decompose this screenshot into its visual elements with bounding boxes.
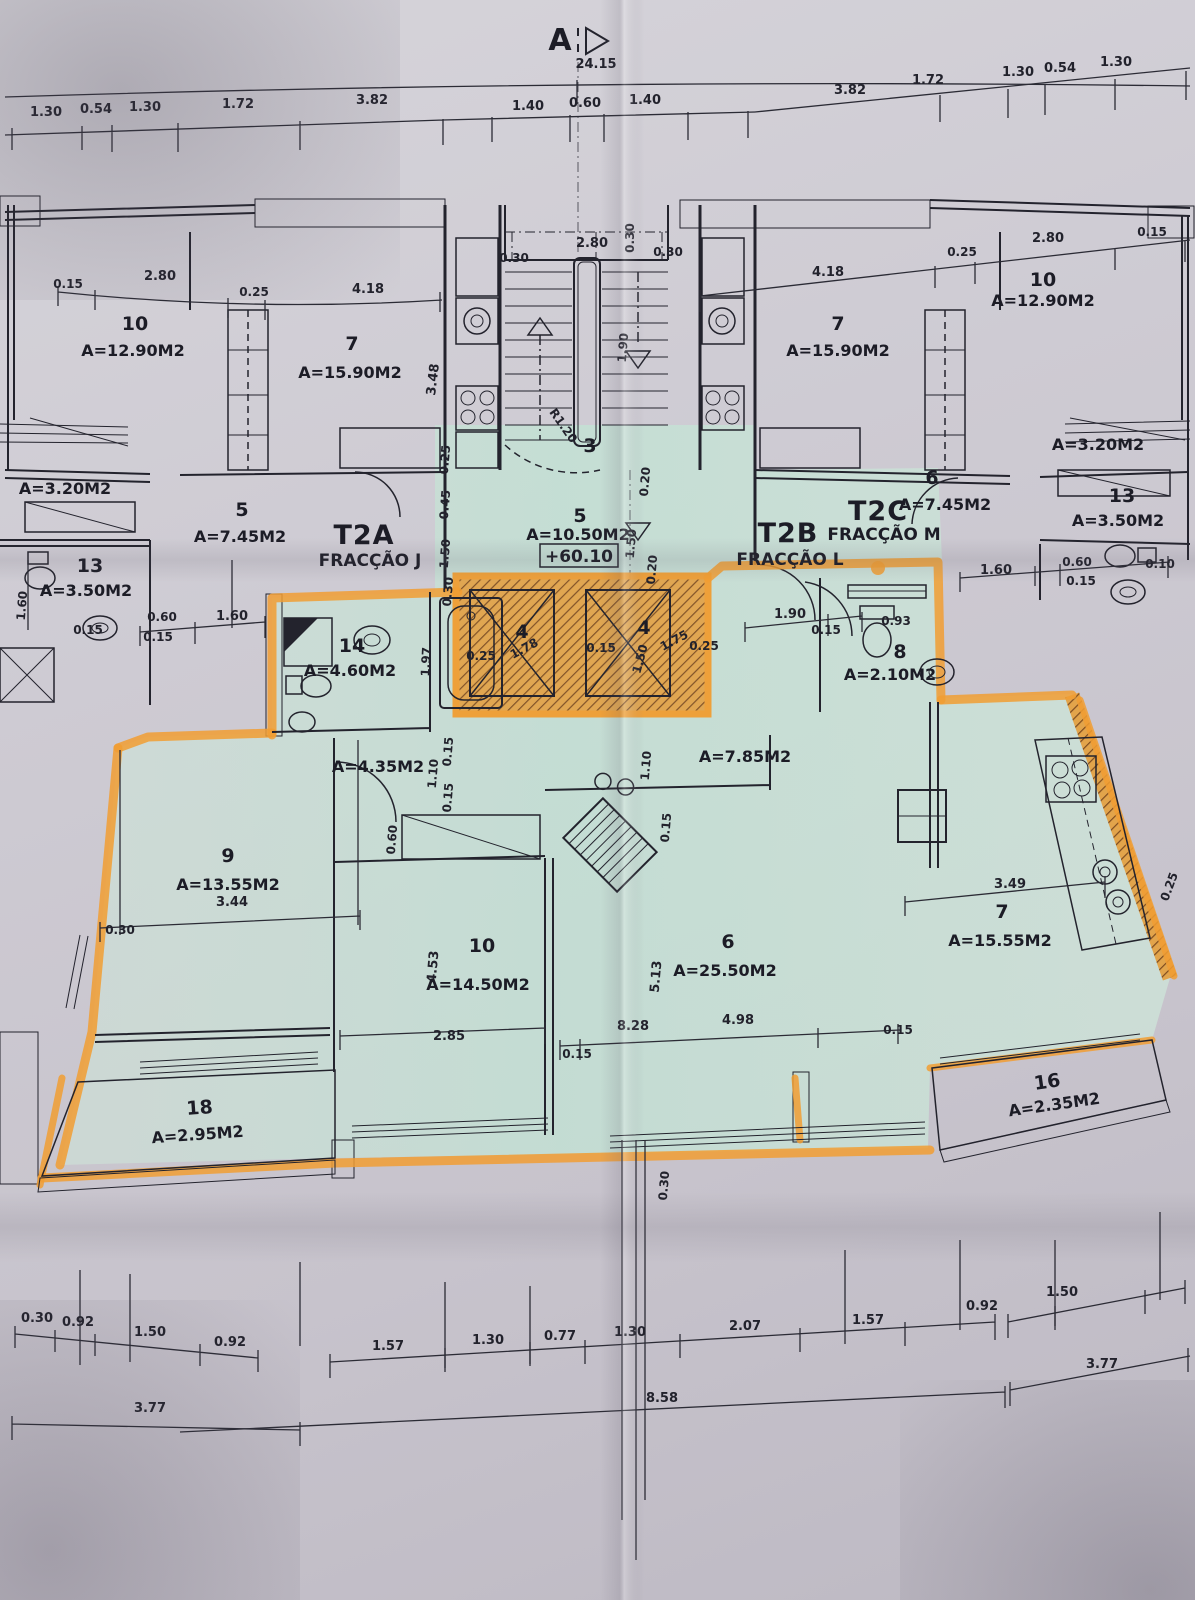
dim-label: 1.97 [418, 647, 434, 677]
dim-label: 0.15 [143, 630, 173, 644]
dim-label: 0.15 [1137, 225, 1167, 239]
room-area: A=15.55M2 [948, 931, 1051, 950]
dim-label: 0.30 [499, 251, 529, 265]
dim-label: 0.15 [562, 1047, 592, 1061]
dim-label: 1.57 [372, 1339, 404, 1354]
room-number: 10 [469, 935, 495, 957]
dim-label: 0.60 [569, 96, 601, 111]
dim-label: 3.82 [834, 83, 866, 98]
room-number: 6 [721, 931, 734, 953]
dim-label: 2.80 [1032, 231, 1064, 246]
dim-label: 1.30 [1002, 65, 1034, 80]
room-number: 3 [583, 435, 596, 457]
dim-label: 0.30 [105, 923, 135, 937]
room-area: A=14.50M2 [426, 975, 529, 994]
dim-label: 0.60 [147, 610, 177, 624]
dim-label: 0.25 [437, 444, 454, 475]
room-number: 5 [235, 499, 248, 521]
dim-label: 0.25 [1158, 870, 1181, 903]
window-upper-left [0, 418, 128, 446]
wall-hatch-corner [0, 1032, 38, 1184]
room-number: 10 [1030, 269, 1056, 291]
dim-label: 2.85 [433, 1029, 465, 1044]
room-number: 16 [1033, 1069, 1062, 1094]
dim-label: 1.60 [14, 590, 31, 621]
door-arc-t2a [355, 472, 400, 517]
dim-label: 3.44 [216, 895, 248, 910]
dim-label: 1.60 [216, 609, 248, 624]
room-number: 9 [221, 845, 234, 867]
room-area: A=2.35M2 [1007, 1089, 1101, 1121]
dim-label: 0.25 [947, 245, 977, 259]
room-area: A=25.50M2 [673, 961, 776, 980]
dim-label: 0.15 [811, 623, 841, 637]
dim-label: 0.92 [966, 1299, 998, 1314]
dim-label: 3.48 [424, 363, 443, 397]
floorplan-svg: A 24.15 1.30 0.54 1.30 1.72 3.82 1.40 0.… [0, 0, 1195, 1600]
room-area: A=3.20M2 [19, 479, 111, 498]
room-number: 5 [573, 505, 586, 527]
dim-label: 4.18 [812, 265, 844, 280]
room-number: 7 [345, 333, 358, 355]
room-area: A=12.90M2 [991, 291, 1094, 310]
dim-label: 2.07 [729, 1319, 761, 1334]
dim-label: 0.15 [73, 623, 103, 637]
floorplan-photo: A 24.15 1.30 0.54 1.30 1.72 3.82 1.40 0.… [0, 0, 1195, 1600]
dim-label: 0.93 [881, 614, 911, 628]
room-area: A=15.90M2 [298, 363, 401, 382]
room-area: A=3.50M2 [1072, 511, 1164, 530]
section-marker-label: A [548, 23, 572, 58]
dim-label: 0.15 [440, 782, 457, 813]
room-number: 7 [995, 901, 1008, 923]
dim-label: 4.98 [722, 1013, 754, 1028]
dim-label: 0.15 [883, 1023, 913, 1037]
room-area: A=3.50M2 [40, 581, 132, 600]
dim-label: 0.15 [658, 812, 675, 843]
dim-label: 1.90 [774, 607, 806, 622]
dim-label: 1.57 [852, 1313, 884, 1328]
dim-label: 3.77 [1086, 1357, 1118, 1372]
dim-label: 0.77 [544, 1329, 576, 1344]
room-area: A=7.45M2 [899, 495, 991, 514]
room-number: 13 [1109, 485, 1135, 507]
dim-label: 1.72 [912, 73, 944, 88]
room-area: A=7.85M2 [699, 747, 791, 766]
room-number: 10 [122, 313, 148, 335]
dim-label: 3.49 [994, 877, 1026, 892]
room-number: 8 [893, 641, 906, 663]
dim-label: 1.40 [512, 99, 544, 114]
room-number: 6 [925, 467, 938, 489]
dim-label: 1.50 [1046, 1285, 1078, 1300]
room-area: A=3.20M2 [1052, 435, 1144, 454]
room-number: 7 [831, 313, 844, 335]
dim-label: 1.30 [1100, 55, 1132, 70]
wardrobe-right [925, 310, 965, 470]
dim-label: 0.30 [653, 245, 683, 259]
elevator-number: 4 [515, 621, 528, 643]
dim-label: 0.15 [440, 736, 457, 767]
room-area: A=12.90M2 [81, 341, 184, 360]
dim-label: 0.60 [384, 824, 401, 855]
room-number: 18 [186, 1096, 214, 1120]
room-number: 14 [339, 635, 365, 657]
room-area: A=4.35M2 [332, 757, 424, 776]
wardrobe-left [228, 310, 268, 470]
room-area: A=4.60M2 [304, 661, 396, 680]
dim-label: 0.25 [466, 649, 496, 663]
dim-label: 0.54 [1044, 61, 1076, 76]
room-area: A=13.55M2 [176, 875, 279, 894]
dim-label: 5.13 [648, 960, 666, 993]
dim-label: 0.45 [437, 489, 454, 520]
unit-code-t2c: T2C [848, 496, 908, 527]
dim-label: 8.58 [646, 1391, 678, 1406]
room-area: A=15.90M2 [786, 341, 889, 360]
room-area: A=2.10M2 [844, 665, 936, 684]
dim-label: 1.30 [472, 1333, 504, 1348]
dim-label: 1.10 [425, 758, 442, 789]
dim-label: 0.25 [689, 639, 719, 653]
